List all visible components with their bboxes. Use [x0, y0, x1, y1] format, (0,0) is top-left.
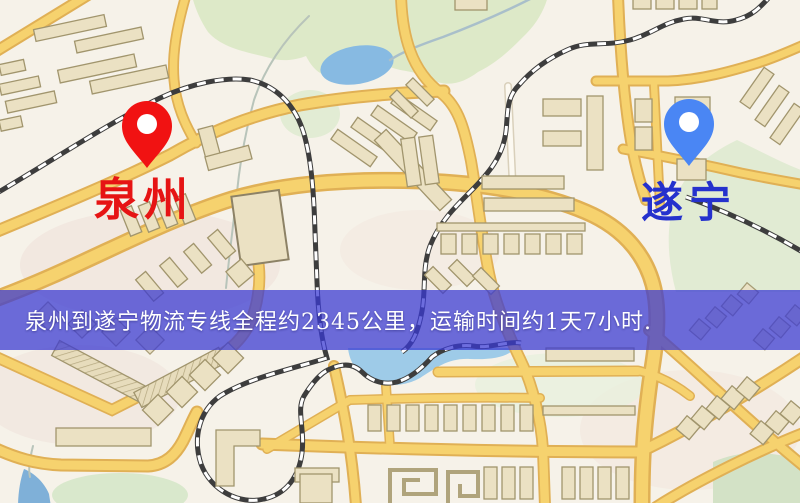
- origin-marker-pin[interactable]: [117, 98, 177, 170]
- destination-city-label: 遂宁: [641, 182, 737, 224]
- map-canvas[interactable]: 泉州 遂宁 泉州到遂宁物流专线全程约2345公里，运输时间约1天7小时.: [0, 0, 800, 503]
- origin-city-label: 泉州: [94, 177, 192, 222]
- base-map: [0, 0, 800, 503]
- route-info-banner: 泉州到遂宁物流专线全程约2345公里，运输时间约1天7小时.: [0, 290, 800, 350]
- destination-marker-pin[interactable]: [659, 96, 719, 168]
- pin-body: [664, 99, 714, 166]
- pin-body: [122, 101, 172, 168]
- route-info-text: 泉州到遂宁物流专线全程约2345公里，运输时间约1天7小时.: [25, 304, 652, 336]
- pin-hole: [679, 112, 699, 132]
- pin-hole: [137, 114, 157, 134]
